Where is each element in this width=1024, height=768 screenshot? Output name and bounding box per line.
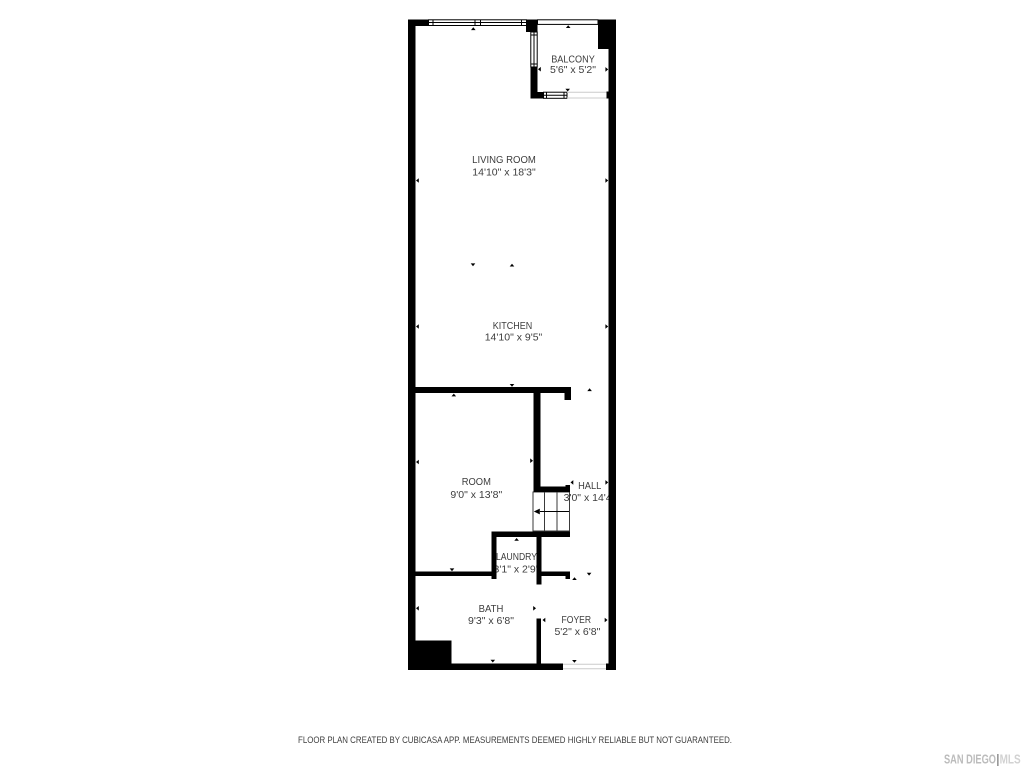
svg-text:5'2" x 6'8": 5'2" x 6'8" [554,626,600,638]
svg-text:9'3" x 6'8": 9'3" x 6'8" [468,615,514,627]
svg-text:SAN DIEGO|MLS: SAN DIEGO|MLS [944,752,1021,767]
svg-text:LIVING ROOM: LIVING ROOM [472,154,536,166]
svg-text:3'0" x 14'4": 3'0" x 14'4" [564,492,616,504]
svg-text:LAUNDRY: LAUNDRY [496,551,537,563]
svg-text:KITCHEN: KITCHEN [493,320,532,332]
svg-text:3'1" x 2'9": 3'1" x 2'9" [494,564,540,576]
svg-text:ROOM: ROOM [462,476,491,488]
svg-text:14'10" x 9'5": 14'10" x 9'5" [485,332,543,344]
svg-text:FOYER: FOYER [562,614,592,626]
svg-text:9'0" x 13'8": 9'0" x 13'8" [450,489,502,501]
svg-text:BATH: BATH [479,603,504,615]
svg-text:HALL: HALL [578,480,601,492]
svg-text:FLOOR PLAN CREATED BY CUBICASA: FLOOR PLAN CREATED BY CUBICASA APP. MEAS… [298,735,732,746]
svg-text:5'6" x 5'2": 5'6" x 5'2" [550,64,596,76]
svg-text:14'10" x 18'3": 14'10" x 18'3" [472,167,536,179]
